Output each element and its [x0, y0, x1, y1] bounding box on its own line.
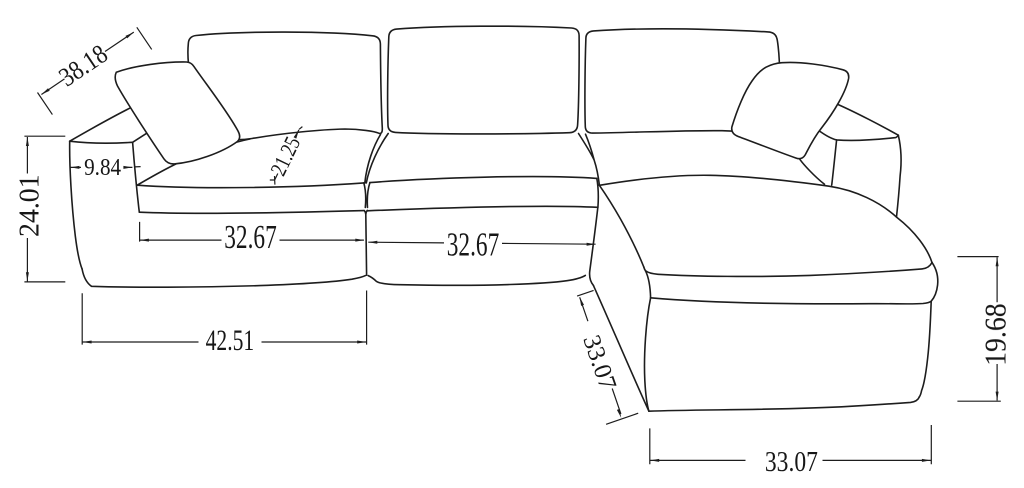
svg-text:9.84: 9.84 [84, 155, 121, 181]
svg-text:21.25: 21.25 [265, 133, 305, 180]
svg-text:24.01: 24.01 [14, 174, 46, 237]
svg-text:32.67: 32.67 [447, 226, 500, 263]
svg-text:32.67: 32.67 [224, 219, 277, 256]
svg-text:33.07: 33.07 [765, 446, 818, 478]
svg-text:33.07: 33.07 [577, 332, 621, 394]
svg-text:42.51: 42.51 [206, 325, 255, 357]
svg-text:19.68: 19.68 [979, 303, 1013, 366]
svg-text:38.18: 38.18 [53, 39, 112, 93]
